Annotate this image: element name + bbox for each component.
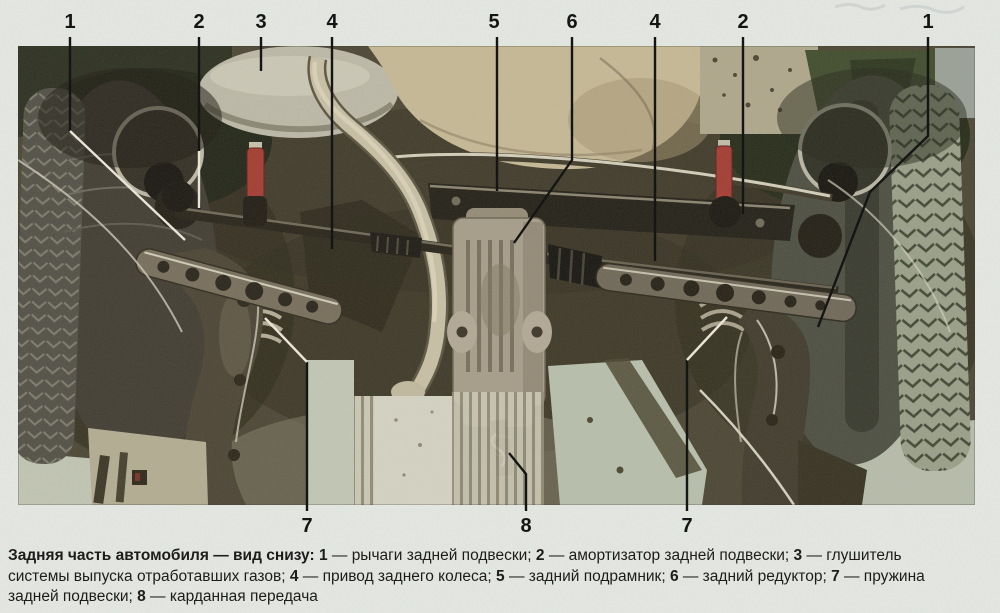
callout-label-6: 6 [566, 12, 577, 32]
callout-label-3: 3 [255, 12, 266, 32]
callout-label-1-left: 1 [64, 12, 75, 32]
callout-label-5: 5 [488, 12, 499, 32]
callout-label-2-right: 2 [737, 12, 748, 32]
photo [0, 0, 1000, 613]
caption: Задняя часть автомобиля — вид снизу: 1 —… [8, 546, 994, 608]
manual-page: 1 2 3 4 5 6 4 2 1 7 8 7 Задняя часть авт… [0, 0, 1000, 613]
caption-line-3: задней подвески; 8 — карданная передача [8, 587, 994, 608]
callout-label-2-left: 2 [193, 12, 204, 32]
callout-label-4-right: 4 [649, 12, 660, 32]
callout-label-1-right: 1 [922, 12, 933, 32]
caption-line-2: системы выпуска отработавших газов; 4 — … [8, 567, 994, 588]
callout-label-4-left: 4 [326, 12, 337, 32]
callout-label-7-left: 7 [301, 516, 312, 536]
callout-label-7-right: 7 [681, 516, 692, 536]
callout-label-8: 8 [520, 516, 531, 536]
caption-line-1: Задняя часть автомобиля — вид снизу: 1 —… [8, 546, 994, 567]
